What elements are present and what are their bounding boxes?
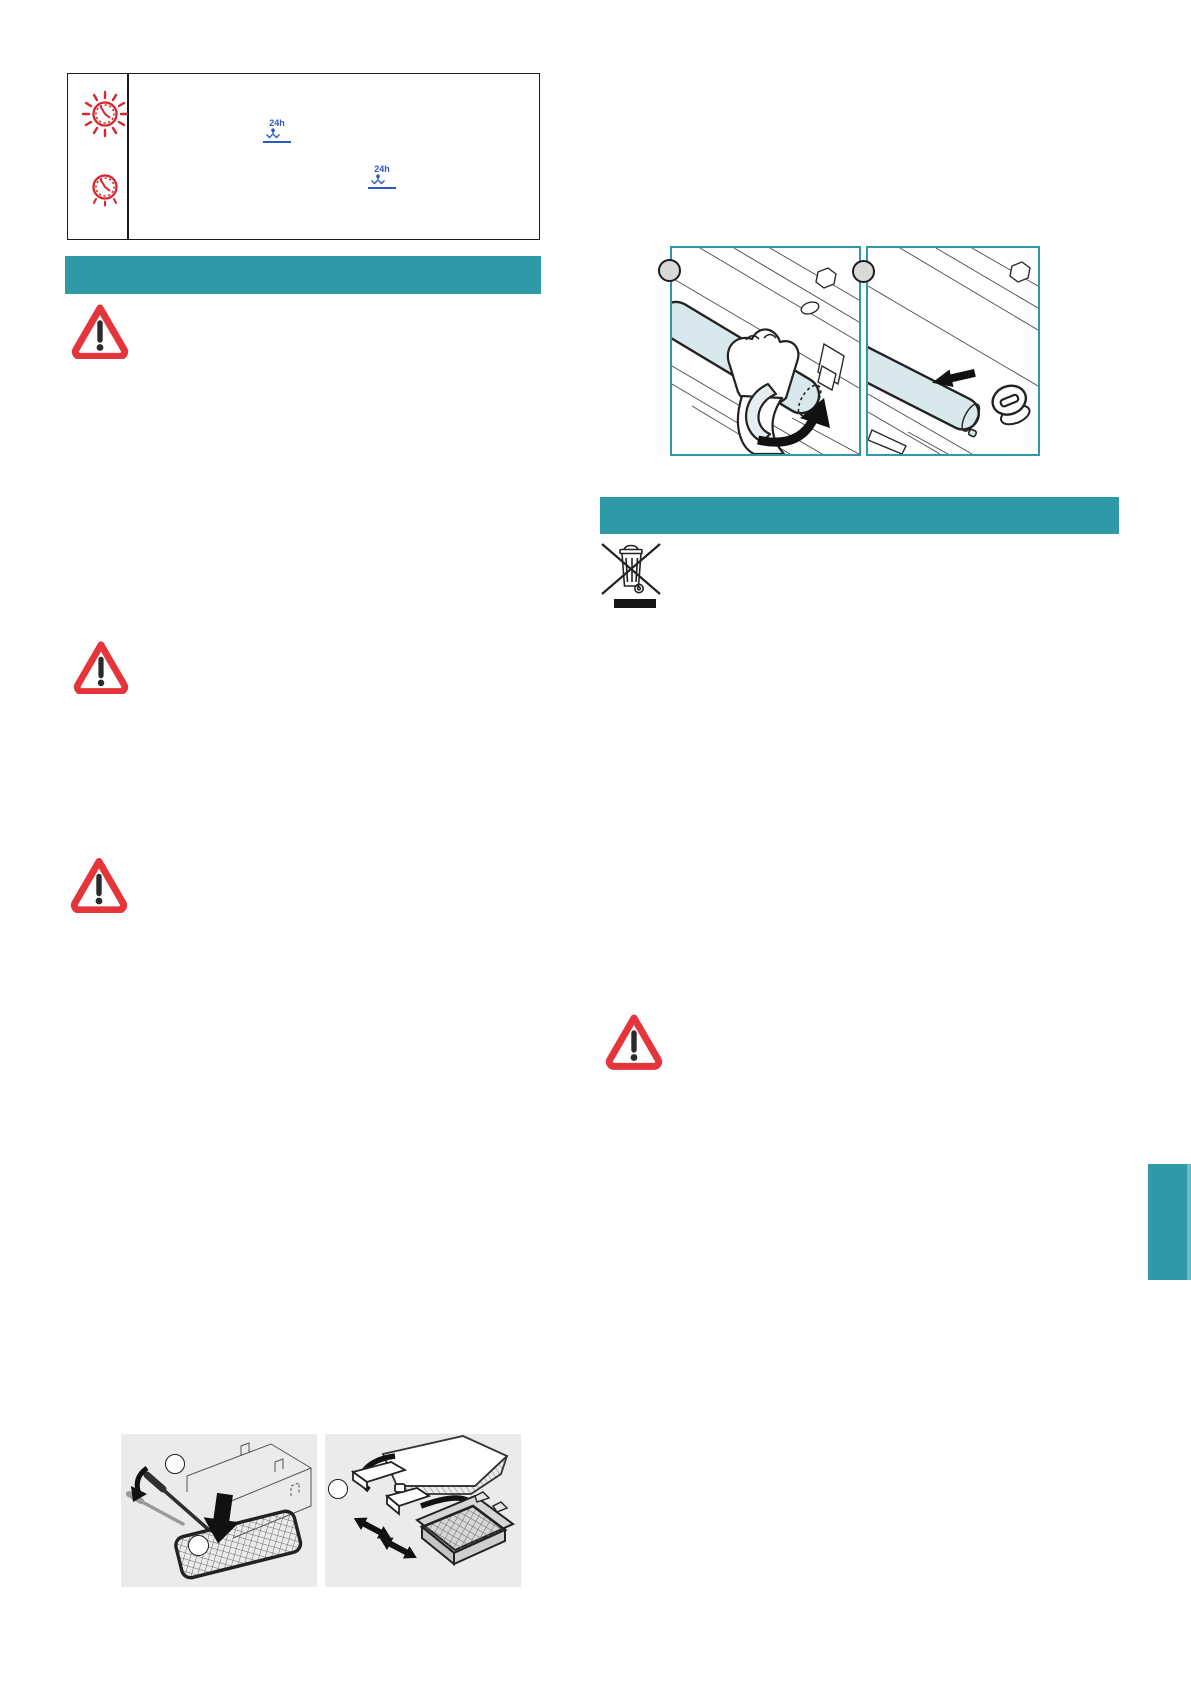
step-number-circle (165, 1454, 185, 1474)
section-header-bar (600, 497, 1119, 534)
weee-black-bar (614, 599, 656, 608)
24h-interval-icon: 24h (263, 119, 291, 143)
drip-icon (368, 174, 388, 186)
24h-label: 24h (263, 119, 291, 128)
weee-crossed-bin-icon (596, 540, 664, 596)
step-number-circle (328, 1479, 348, 1499)
section-header-bar (65, 256, 541, 294)
figure-lamp-slide-panel (866, 246, 1040, 456)
figure-lamp-rotate-panel (670, 246, 861, 456)
indicator-legend-table: 24h 24h (67, 73, 540, 240)
warning-triangle-icon (72, 639, 130, 694)
alarm-clock-flashing-icon (76, 84, 134, 144)
figure-connector-panel (325, 1434, 521, 1587)
alarm-clock-icon (79, 160, 131, 214)
manual-page: 24h 24h (0, 0, 1191, 1684)
24h-interval-icon: 24h (368, 165, 396, 189)
drip-icon (263, 128, 283, 140)
warning-triangle-icon (69, 855, 129, 913)
step-number-circle (188, 1535, 209, 1556)
warning-triangle-icon (70, 302, 130, 359)
figure-cover-removal-panel (121, 1434, 317, 1587)
24h-label: 24h (368, 165, 396, 174)
warning-triangle-icon (604, 1011, 664, 1070)
step-number-circle (852, 260, 875, 283)
page-edge-tab (1148, 1164, 1191, 1280)
step-number-circle (658, 259, 681, 282)
